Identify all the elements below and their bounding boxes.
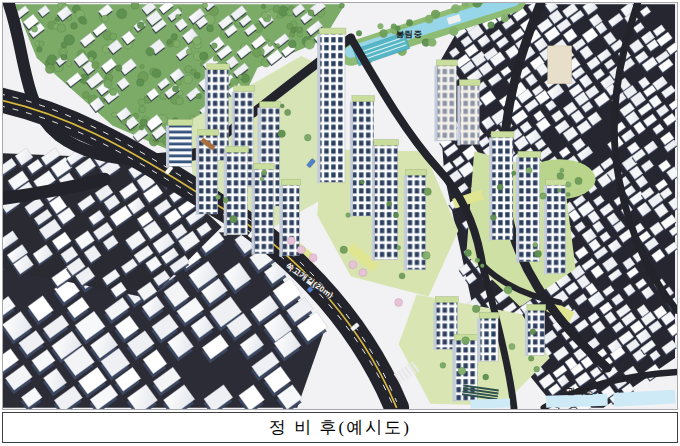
figure: 봉림중 관악초 쑥고개길(20m) 정 비 후(예시도) [2, 2, 678, 443]
render-area: 봉림중 관악초 쑥고개길(20m) [2, 2, 678, 410]
figure-caption-text: 정 비 후(예시도) [269, 416, 411, 439]
label-gwanak-elementary-school: 관악초 [566, 386, 594, 396]
figure-caption: 정 비 후(예시도) [2, 412, 678, 443]
label-bongnim-middle-school: 봉림중 [396, 29, 423, 39]
aerial-render: 봉림중 관악초 쑥고개길(20m) [3, 3, 677, 409]
